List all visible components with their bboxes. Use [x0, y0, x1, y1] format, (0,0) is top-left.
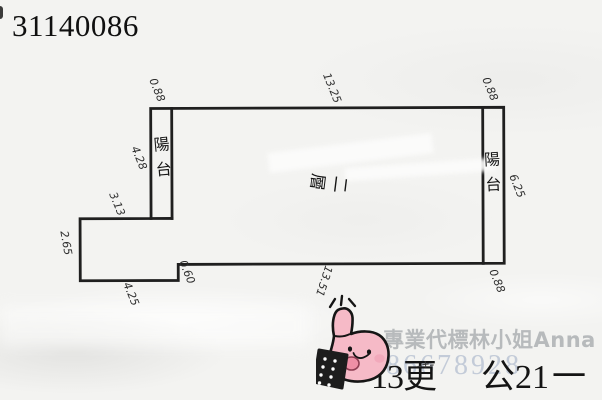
note-dash: 一 — [552, 349, 586, 398]
balcony-right-label: 陽台 — [482, 151, 501, 202]
motion-strokes-icon — [330, 296, 355, 307]
note-marks: -+- — [416, 357, 435, 375]
floor-label: 二層 — [303, 169, 351, 191]
cheek-blush — [374, 354, 384, 362]
left-eye — [348, 346, 352, 351]
note-right: 公21 — [481, 349, 549, 398]
balcony-left-label: 陽台 — [151, 135, 171, 186]
scanned-floorplan-page: 31140086 0.88 13.25 0.88 4.28 3.13 2.65 … — [0, 0, 602, 400]
whiteout-streak — [0, 305, 310, 347]
unit-outline — [80, 107, 505, 280]
thumbs-up-icon — [316, 293, 404, 400]
